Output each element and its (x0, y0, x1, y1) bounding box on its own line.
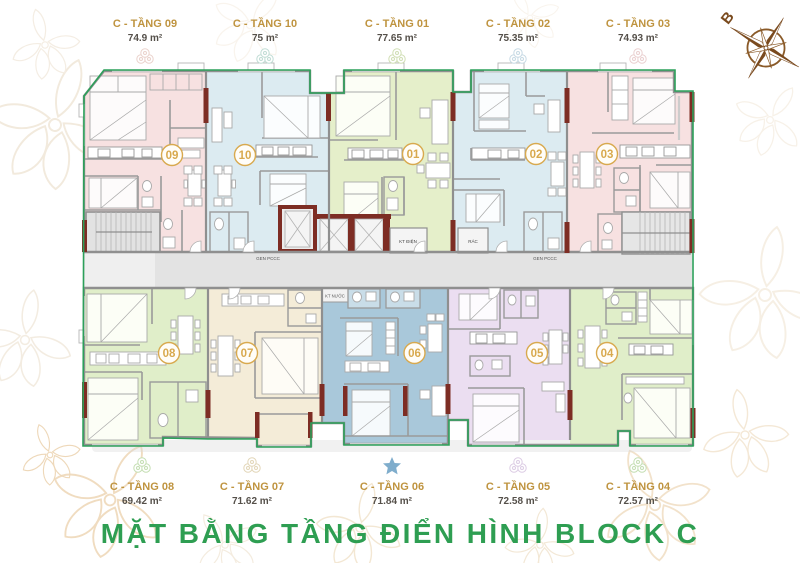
svg-text:75 m²: 75 m² (252, 33, 279, 44)
svg-text:GEN PCCC: GEN PCCC (533, 256, 558, 261)
svg-text:72.58 m²: 72.58 m² (498, 496, 539, 507)
svg-text:74.9 m²: 74.9 m² (128, 33, 163, 44)
svg-text:C - TẦNG 08: C - TẦNG 08 (110, 480, 174, 493)
svg-text:B: B (718, 9, 738, 28)
svg-text:C - TẦNG 04: C - TẦNG 04 (606, 480, 671, 493)
svg-text:08: 08 (163, 348, 176, 360)
svg-text:RÁC: RÁC (468, 238, 478, 244)
svg-text:71.62 m²: 71.62 m² (232, 496, 273, 507)
svg-text:71.84 m²: 71.84 m² (372, 496, 413, 507)
svg-text:01: 01 (407, 149, 420, 161)
svg-text:77.65 m²: 77.65 m² (377, 33, 418, 44)
svg-text:04: 04 (601, 348, 614, 360)
svg-text:C - TẦNG 07: C - TẦNG 07 (220, 480, 284, 493)
svg-text:C - TẦNG 03: C - TẦNG 03 (606, 17, 670, 30)
svg-text:C - TẦNG 05: C - TẦNG 05 (486, 480, 550, 493)
svg-text:05: 05 (531, 348, 544, 360)
svg-text:10: 10 (239, 150, 252, 162)
svg-text:07: 07 (241, 348, 254, 360)
svg-text:C - TẦNG 02: C - TẦNG 02 (486, 17, 550, 30)
svg-text:KT NƯỚC: KT NƯỚC (325, 294, 345, 299)
svg-text:06: 06 (408, 348, 421, 360)
svg-text:02: 02 (530, 149, 543, 161)
svg-text:72.57 m²: 72.57 m² (618, 496, 659, 507)
svg-text:C - TẦNG 09: C - TẦNG 09 (113, 17, 177, 30)
svg-text:MẶT BẰNG TẦNG ĐIỂN HÌNH BLOCK: MẶT BẰNG TẦNG ĐIỂN HÌNH BLOCK C (101, 518, 700, 549)
svg-text:03: 03 (601, 149, 614, 161)
svg-text:75.35 m²: 75.35 m² (498, 33, 539, 44)
svg-text:C - TẦNG 10: C - TẦNG 10 (233, 17, 297, 30)
svg-text:GEN PCCC: GEN PCCC (256, 256, 281, 261)
svg-text:C - TẦNG 01: C - TẦNG 01 (365, 17, 429, 30)
svg-text:09: 09 (166, 150, 179, 162)
svg-text:74.93 m²: 74.93 m² (618, 33, 659, 44)
svg-text:KT ĐIỆN: KT ĐIỆN (399, 237, 417, 244)
svg-text:C - TẦNG 06: C - TẦNG 06 (360, 480, 424, 493)
svg-text:69.42 m²: 69.42 m² (122, 496, 163, 507)
